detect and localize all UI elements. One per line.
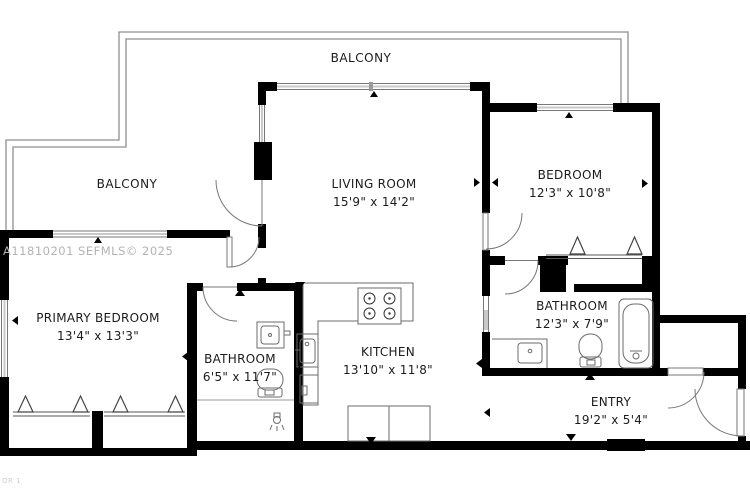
door-swing-icon <box>216 180 262 226</box>
vanity-sink-icon <box>518 343 542 363</box>
toilet-icon <box>579 334 602 367</box>
bathroom2-label: BATHROOM 12'3" x 7'9" <box>535 297 609 333</box>
primary-bedroom-label: PRIMARY BEDROOM 13'4" x 13'3" <box>36 309 160 345</box>
door-swing-icon <box>668 368 704 408</box>
shower-icon <box>270 413 284 431</box>
door-swing-icon <box>227 237 259 267</box>
door-swing-icon <box>505 261 538 295</box>
door-swing-icon <box>483 213 522 250</box>
room-dims: 12'3" x 10'8" <box>529 184 611 202</box>
room-name: ENTRY <box>574 393 648 411</box>
window-icon <box>258 105 266 142</box>
room-dims: 13'4" x 13'3" <box>36 327 160 345</box>
window-icon <box>537 103 613 112</box>
doors <box>203 180 744 436</box>
window-icon <box>0 300 9 377</box>
room-name: BATHROOM <box>203 350 277 368</box>
window-icon <box>53 230 167 238</box>
door-swing-icon <box>203 287 237 321</box>
floorplan-page: A11810201 SEFMLS© 2025 BALCONY BALCONY L… <box>0 0 750 500</box>
kitchen-island-counter <box>348 406 430 441</box>
mls-watermark: A11810201 SEFMLS© 2025 <box>3 244 173 258</box>
room-name: LIVING ROOM <box>332 175 417 193</box>
vanity-sink-icon <box>257 322 290 348</box>
footer-note: OR 1 <box>2 477 21 485</box>
window-icon <box>482 296 490 332</box>
living-room-label: LIVING ROOM 15'9" x 14'2" <box>332 175 417 211</box>
entry-label: ENTRY 19'2" x 5'4" <box>574 393 648 429</box>
kitchen-label: KITCHEN 13'10" x 11'8" <box>343 343 433 379</box>
room-dims: 13'10" x 11'8" <box>343 361 433 379</box>
stove-icon <box>358 288 401 324</box>
room-dims: 6'5" x 11'7" <box>203 368 277 386</box>
room-dims: 15'9" x 14'2" <box>332 193 417 211</box>
room-name: BEDROOM <box>529 166 611 184</box>
room-dims: 12'3" x 7'9" <box>535 315 609 333</box>
bathtub-icon <box>619 299 653 368</box>
door-swing-icon <box>695 389 744 436</box>
bathroom1-label: BATHROOM 6'5" x 11'7" <box>203 350 277 386</box>
balcony-left-label: BALCONY <box>97 177 158 191</box>
room-name: PRIMARY BEDROOM <box>36 309 160 327</box>
room-dims: 19'2" x 5'4" <box>574 411 648 429</box>
bedroom-label: BEDROOM 12'3" x 10'8" <box>529 166 611 202</box>
room-name: BATHROOM <box>535 297 609 315</box>
window-icon <box>277 82 470 91</box>
balcony-top-label: BALCONY <box>331 51 392 65</box>
room-name: KITCHEN <box>343 343 433 361</box>
